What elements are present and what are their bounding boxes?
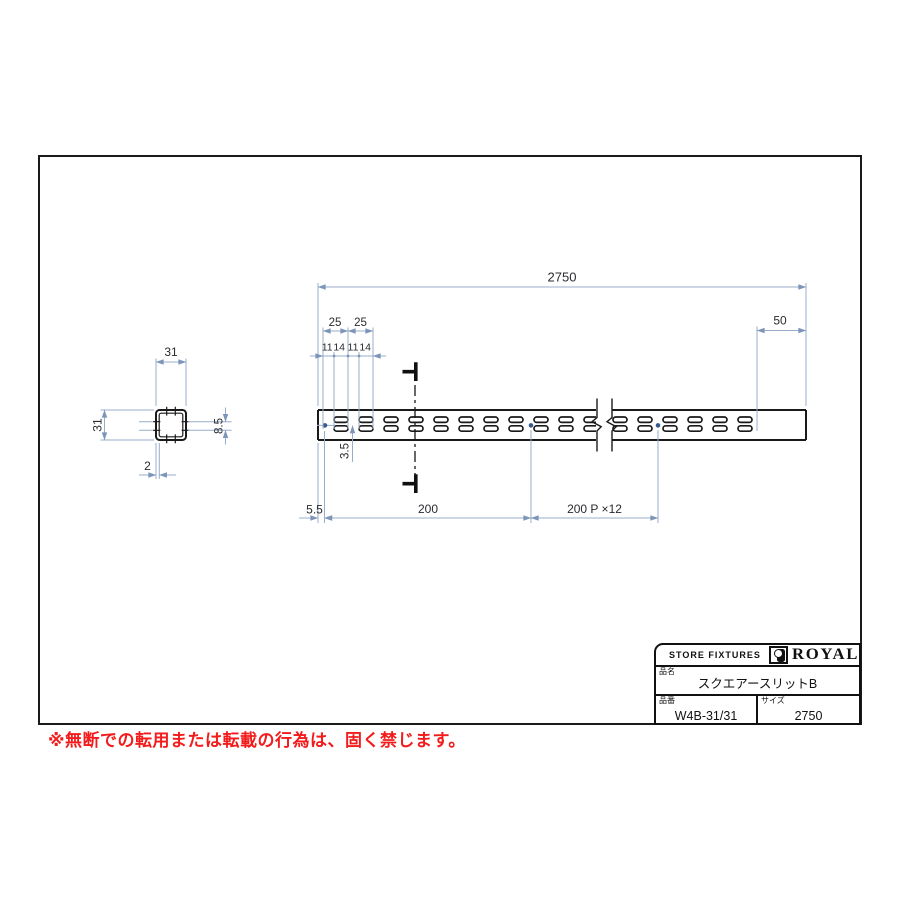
title-block-header: STORE FIXTURES ROYAL bbox=[656, 645, 859, 667]
slot bbox=[534, 426, 548, 431]
slot bbox=[409, 426, 423, 431]
slot bbox=[334, 426, 348, 431]
dim-pitch-b-label: 25 bbox=[354, 317, 367, 329]
section-outer-profile bbox=[156, 410, 186, 440]
dim-edge-label: 5.5 bbox=[306, 503, 323, 517]
cross-section-view bbox=[139, 407, 189, 443]
slot bbox=[738, 426, 752, 431]
dim-slot-4-label: 14 bbox=[359, 342, 371, 354]
slot bbox=[409, 417, 423, 422]
royal-logo-icon bbox=[769, 646, 788, 664]
slot bbox=[334, 417, 348, 422]
slot bbox=[459, 417, 473, 422]
dim-total-label: 2750 bbox=[548, 270, 577, 285]
dim-slot-1-label: 11 bbox=[322, 342, 333, 354]
slot bbox=[713, 426, 727, 431]
part-number-cell: 品番 W4B-31/31 bbox=[656, 696, 758, 725]
slot bbox=[484, 426, 498, 431]
slot bbox=[459, 426, 473, 431]
brand-name: ROYAL bbox=[792, 646, 859, 664]
slot bbox=[559, 426, 573, 431]
slot bbox=[509, 417, 523, 422]
part-number-label: 品番 bbox=[659, 697, 675, 705]
datum-dot-middle bbox=[529, 423, 534, 428]
part-number-value: W4B-31/31 bbox=[656, 709, 756, 723]
slot-pattern bbox=[334, 417, 752, 431]
section-slot-marks bbox=[153, 407, 189, 443]
section-centerline-stubs bbox=[139, 422, 152, 431]
cross-section-dimensions: 31 31 8.5 2 bbox=[91, 345, 232, 479]
dim-width-label: 31 bbox=[164, 345, 178, 359]
title-block: STORE FIXTURES ROYAL 品名 スクエアースリットB 品番 W4… bbox=[654, 643, 861, 725]
slot bbox=[359, 417, 373, 422]
slot bbox=[638, 417, 652, 422]
slot bbox=[663, 426, 677, 431]
store-fixtures-label: STORE FIXTURES bbox=[669, 650, 761, 660]
slot bbox=[613, 417, 627, 422]
dim-row-gap-label: 3.5 bbox=[340, 443, 352, 459]
slot bbox=[713, 417, 727, 422]
slot bbox=[663, 417, 677, 422]
product-name-value: スクエアースリットB bbox=[656, 673, 859, 692]
front-view-top-dimensions: 2750 50 25 25 11 14 11 14 3.5 bbox=[310, 270, 806, 463]
section-inner-profile bbox=[159, 413, 183, 437]
dim-pitch-a-label: 25 bbox=[329, 317, 342, 329]
slot bbox=[434, 426, 448, 431]
slot bbox=[638, 426, 652, 431]
dim-wall-label: 2 bbox=[144, 459, 151, 473]
extension-lines bbox=[101, 359, 232, 480]
chain-tick bbox=[358, 355, 361, 358]
size-value: 2750 bbox=[758, 709, 859, 723]
chain-tick bbox=[333, 355, 336, 358]
slot bbox=[688, 426, 702, 431]
product-name-row: 品名 スクエアースリットB bbox=[656, 667, 859, 696]
slot bbox=[484, 417, 498, 422]
dim-slot-3-label: 11 bbox=[348, 342, 359, 354]
slot bbox=[559, 417, 573, 422]
slot bbox=[688, 417, 702, 422]
size-cell: サイズ 2750 bbox=[758, 696, 859, 725]
datum-dot-right bbox=[656, 423, 661, 428]
slot bbox=[384, 426, 398, 431]
slot bbox=[534, 417, 548, 422]
drawing-canvas: 31 31 8.5 2 2750 50 25 25 bbox=[0, 0, 900, 900]
part-info-row: 品番 W4B-31/31 サイズ 2750 bbox=[656, 696, 859, 725]
extension-lines bbox=[318, 283, 806, 431]
royal-logo bbox=[769, 646, 788, 664]
dim-slot-2-label: 14 bbox=[333, 342, 345, 354]
copyright-warning: ※無断での転用または転載の行為は、固く禁じます。 bbox=[48, 726, 466, 751]
dim-repeat-pitch-label: 200 P ×12 bbox=[567, 502, 622, 516]
slot bbox=[584, 426, 598, 431]
dim-height-label: 31 bbox=[91, 418, 105, 432]
slot bbox=[509, 426, 523, 431]
front-view bbox=[317, 362, 806, 493]
slot bbox=[359, 426, 373, 431]
dim-first-pitch-label: 200 bbox=[418, 502, 438, 516]
dim-end-label: 50 bbox=[773, 314, 787, 328]
slot bbox=[384, 417, 398, 422]
chain-tick bbox=[347, 355, 350, 358]
size-label: サイズ bbox=[761, 697, 785, 705]
slot bbox=[738, 417, 752, 422]
slot bbox=[434, 417, 448, 422]
dim-slot-label: 8.5 bbox=[214, 418, 226, 434]
